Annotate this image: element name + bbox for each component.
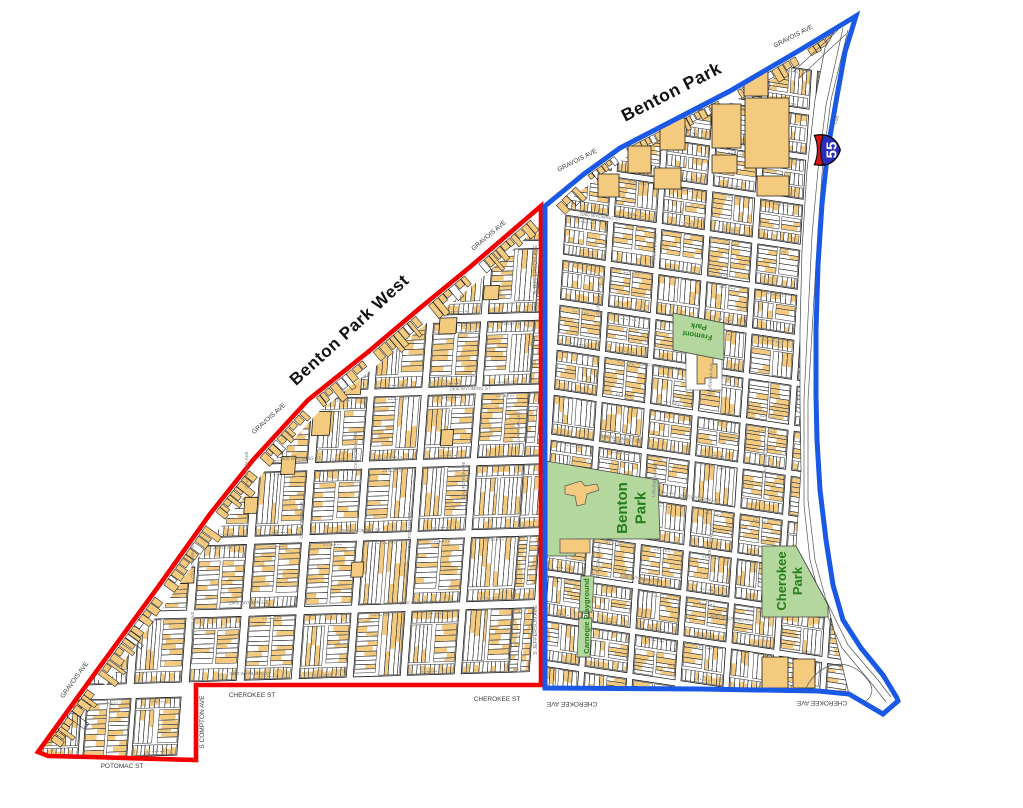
svg-text:CHEROKEE AVE: CHEROKEE AVE <box>546 700 597 707</box>
svg-text:CHEROKEE ST: CHEROKEE ST <box>229 692 276 699</box>
svg-text:CALIFORNIA AVE: CALIFORNIA AVE <box>190 541 195 578</box>
svg-text:2900 WYOMING ST: 2900 WYOMING ST <box>399 600 441 606</box>
svg-text:2900 WYOMING ST: 2900 WYOMING ST <box>229 600 271 606</box>
svg-text:Carnegie Playground: Carnegie Playground <box>582 578 591 654</box>
svg-text:Cherokee: Cherokee <box>774 551 789 610</box>
svg-text:CALIFORNIA AVE: CALIFORNIA AVE <box>244 451 249 488</box>
svg-text:2900 WYOMING ST: 2900 WYOMING ST <box>229 671 271 676</box>
svg-text:S JEFFERSON AVE: S JEFFERSON AVE <box>533 605 539 655</box>
svg-text:POTOMAC ST: POTOMAC ST <box>101 763 144 770</box>
svg-text:2900 WYOMING ST: 2900 WYOMING ST <box>449 386 491 392</box>
svg-text:Park: Park <box>790 566 805 595</box>
svg-text:S COMPTON AVE: S COMPTON AVE <box>199 695 206 749</box>
svg-text:Park: Park <box>633 491 650 524</box>
svg-text:CHEROKEE ST: CHEROKEE ST <box>474 696 521 703</box>
svg-text:CALIFORNIA AVE: CALIFORNIA AVE <box>353 431 358 468</box>
svg-text:CALIFORNIA AVE: CALIFORNIA AVE <box>299 501 304 538</box>
svg-text:CHEROKEE AVE: CHEROKEE AVE <box>796 699 847 706</box>
svg-text:2900 WYOMING ST: 2900 WYOMING ST <box>279 456 321 462</box>
svg-text:CALIFORNIA AVE: CALIFORNIA AVE <box>516 411 521 448</box>
svg-text:CALIFORNIA AVE: CALIFORNIA AVE <box>190 611 195 648</box>
svg-text:55: 55 <box>824 142 841 159</box>
svg-text:S JEFFERSON AVE: S JEFFERSON AVE <box>533 245 539 295</box>
svg-text:2900 WYOMING ST: 2900 WYOMING ST <box>339 528 381 534</box>
svg-text:CALIFORNIA AVE: CALIFORNIA AVE <box>461 461 466 498</box>
svg-text:CALIFORNIA AVE: CALIFORNIA AVE <box>407 511 412 548</box>
svg-text:Benton: Benton <box>614 482 631 534</box>
